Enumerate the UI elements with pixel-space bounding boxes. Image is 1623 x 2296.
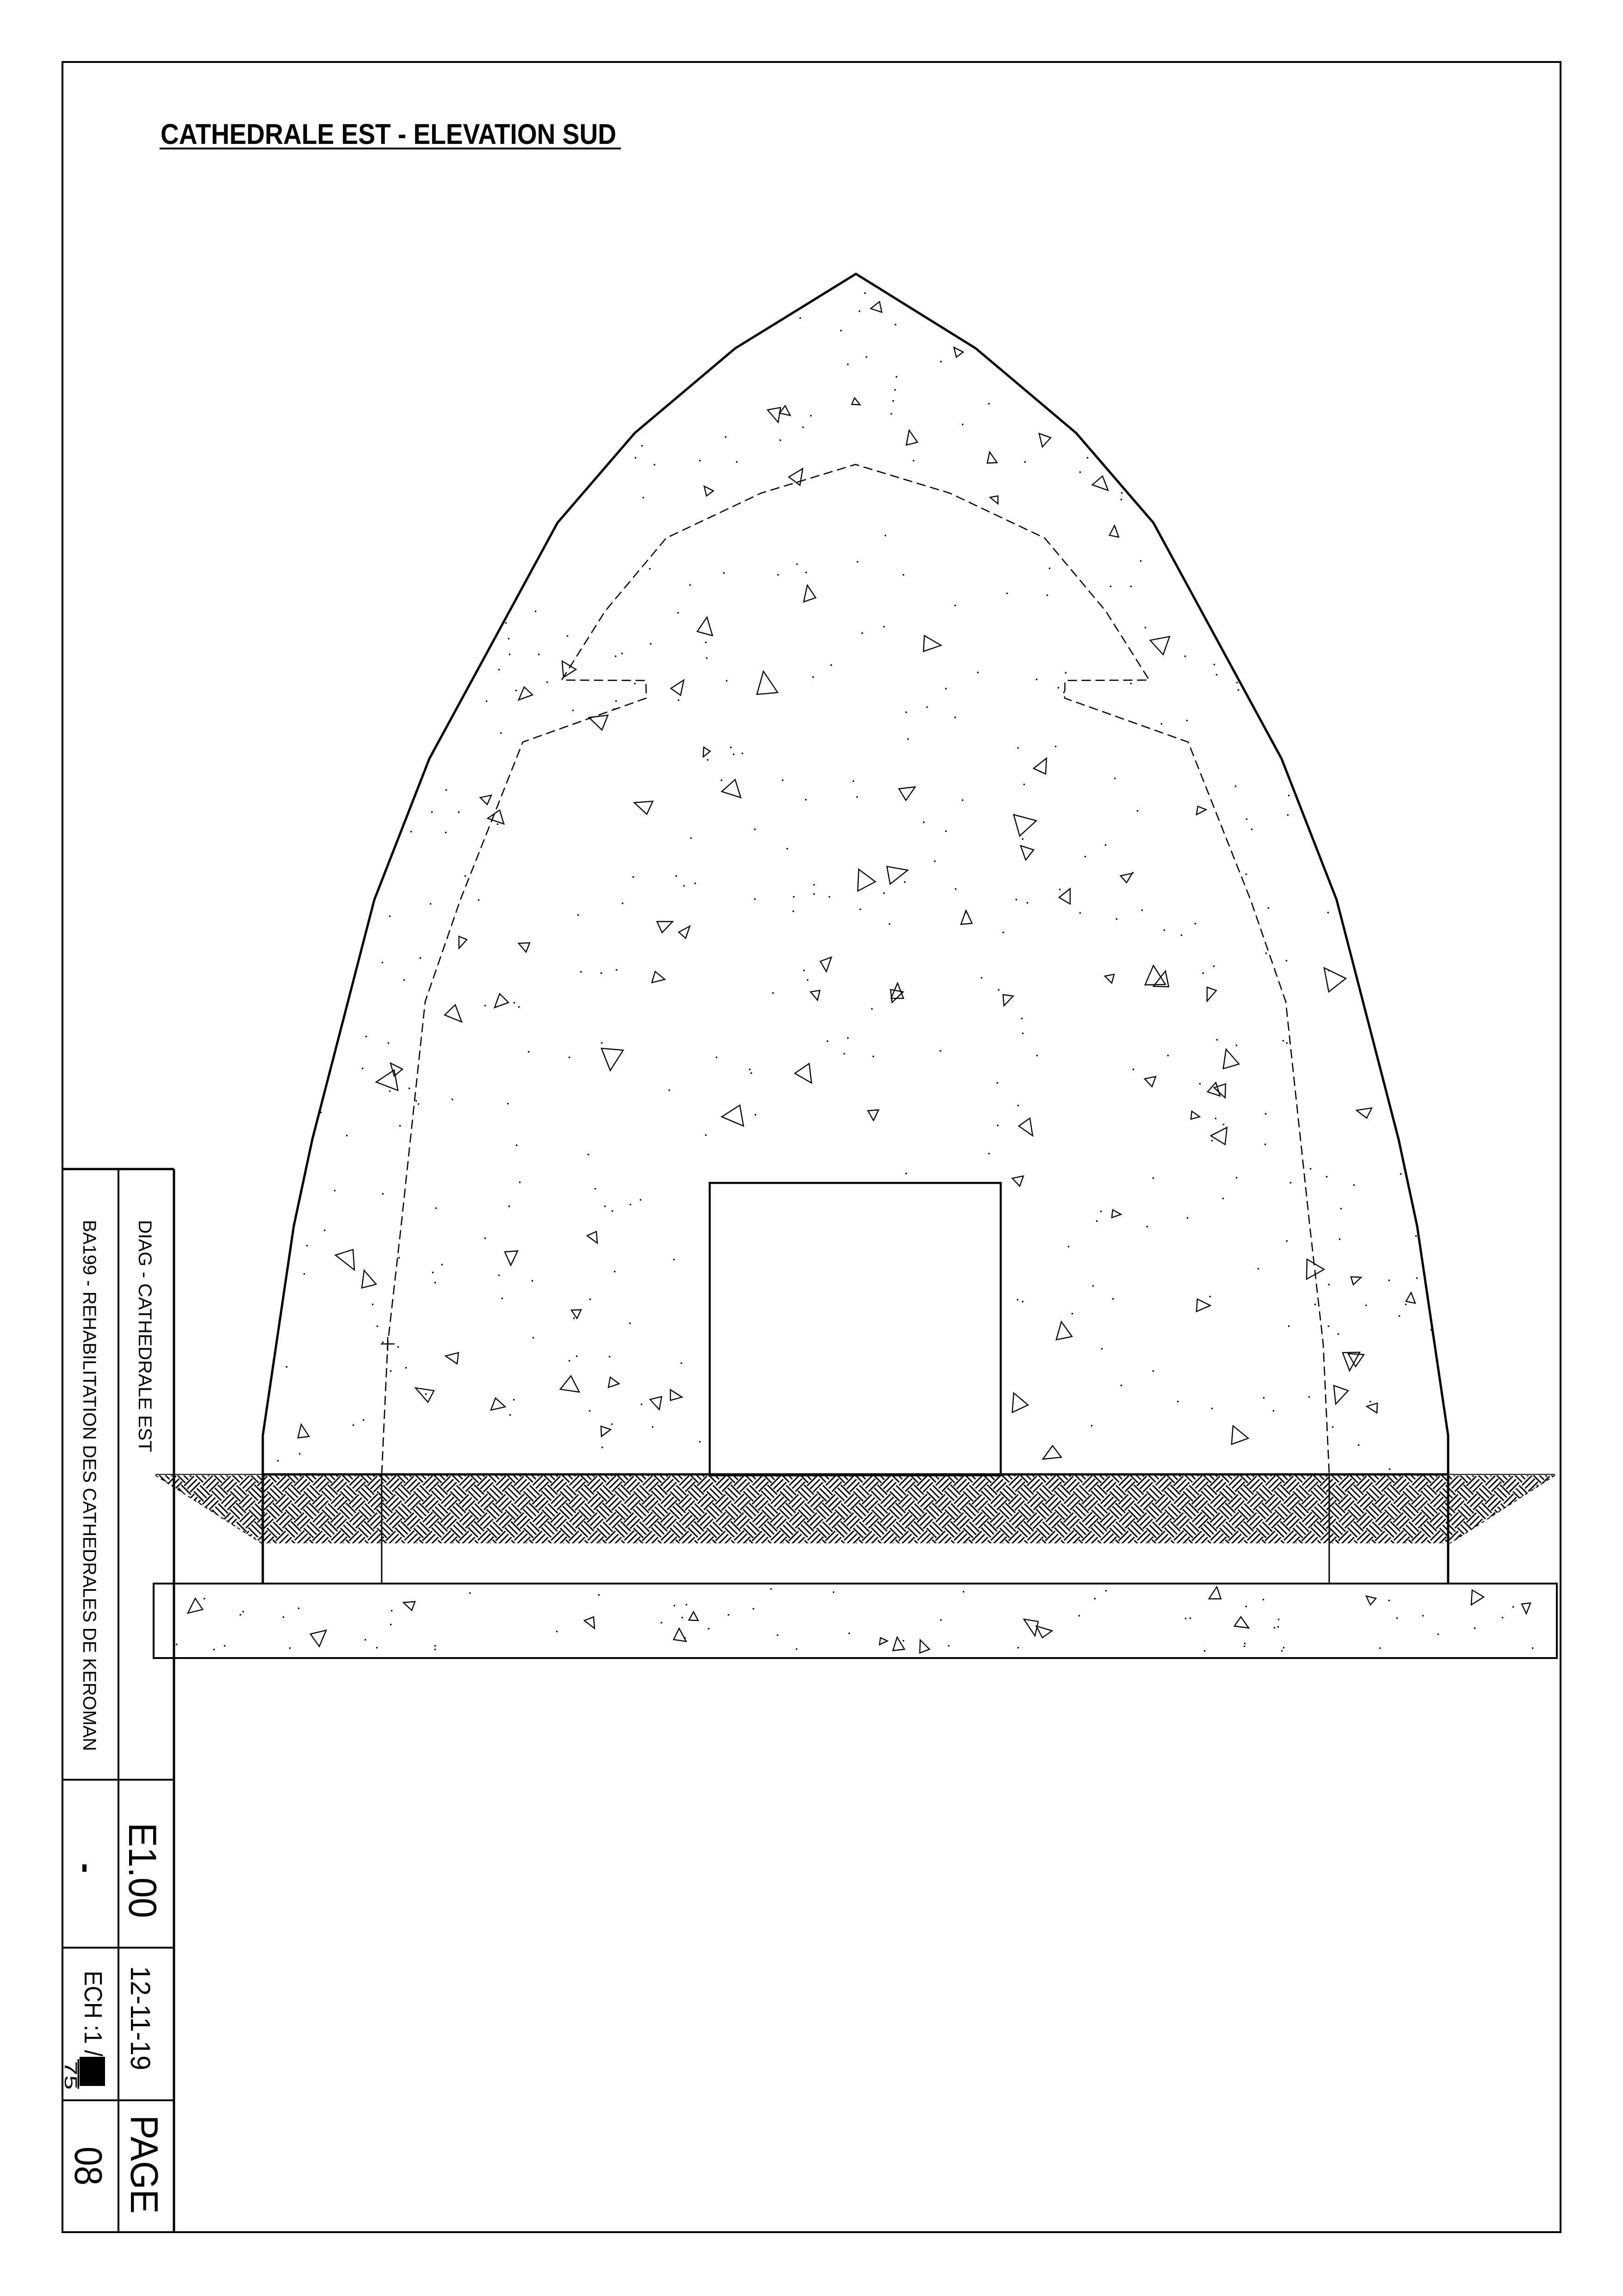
svg-text:BA199 - REHABILITATION DES CAT: BA199 - REHABILITATION DES CATHEDRALES D… [79,1220,99,1751]
svg-text:CATHEDRALE EST - ELEVATION SUD: CATHEDRALE EST - ELEVATION SUD [161,118,616,150]
svg-text:08: 08 [67,2147,110,2185]
svg-text:ECH :1 /: ECH :1 / [79,1971,107,2056]
svg-text:DIAG - CATHEDRALE EST: DIAG - CATHEDRALE EST [135,1220,155,1452]
svg-text:75: 75 [61,2061,80,2090]
svg-text:12-11-19: 12-11-19 [125,1966,156,2070]
svg-text:PAGE: PAGE [123,2115,166,2214]
svg-text:E1.00: E1.00 [120,1823,164,1918]
